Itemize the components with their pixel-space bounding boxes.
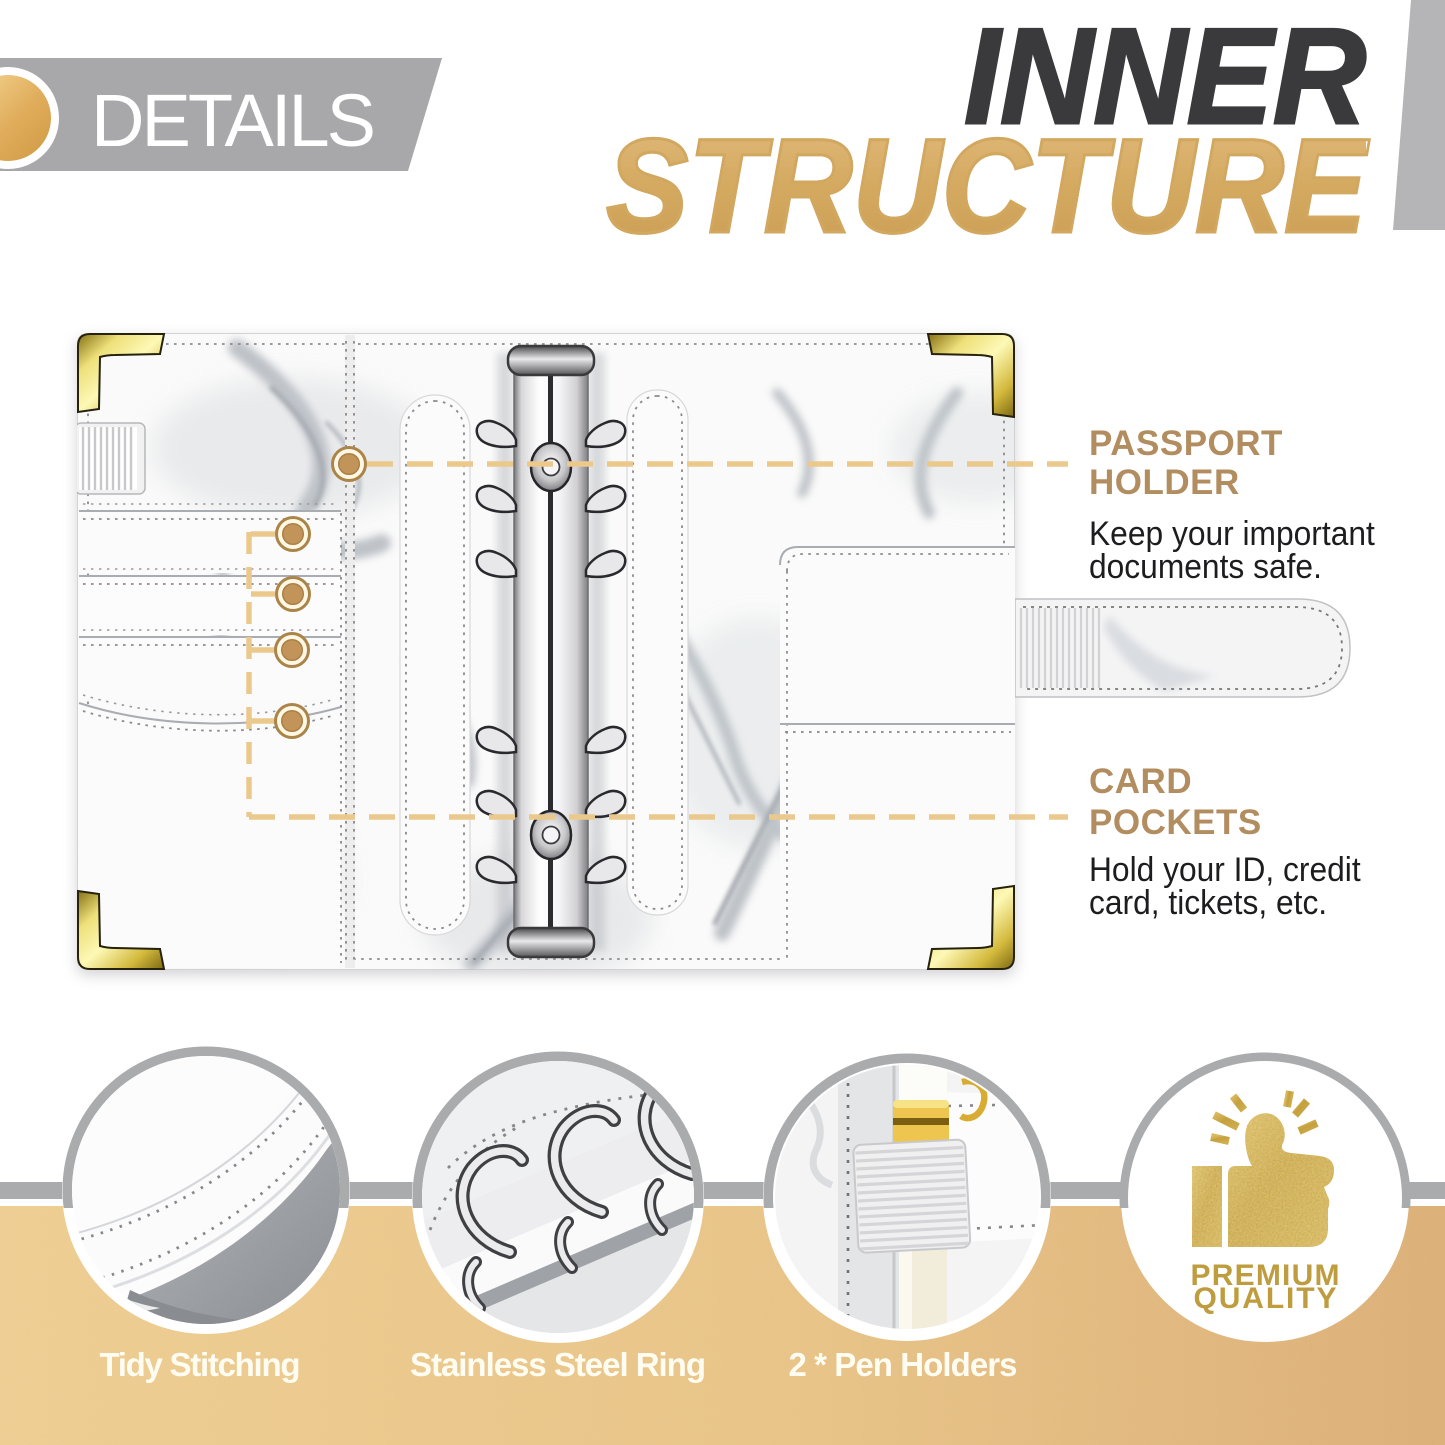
svg-text:2 * Pen Holders: 2 * Pen Holders [789,1346,1018,1383]
svg-text:Stainless Steel Ring: Stainless Steel Ring [410,1346,706,1383]
svg-text:Tidy Stitching: Tidy Stitching [100,1346,301,1383]
